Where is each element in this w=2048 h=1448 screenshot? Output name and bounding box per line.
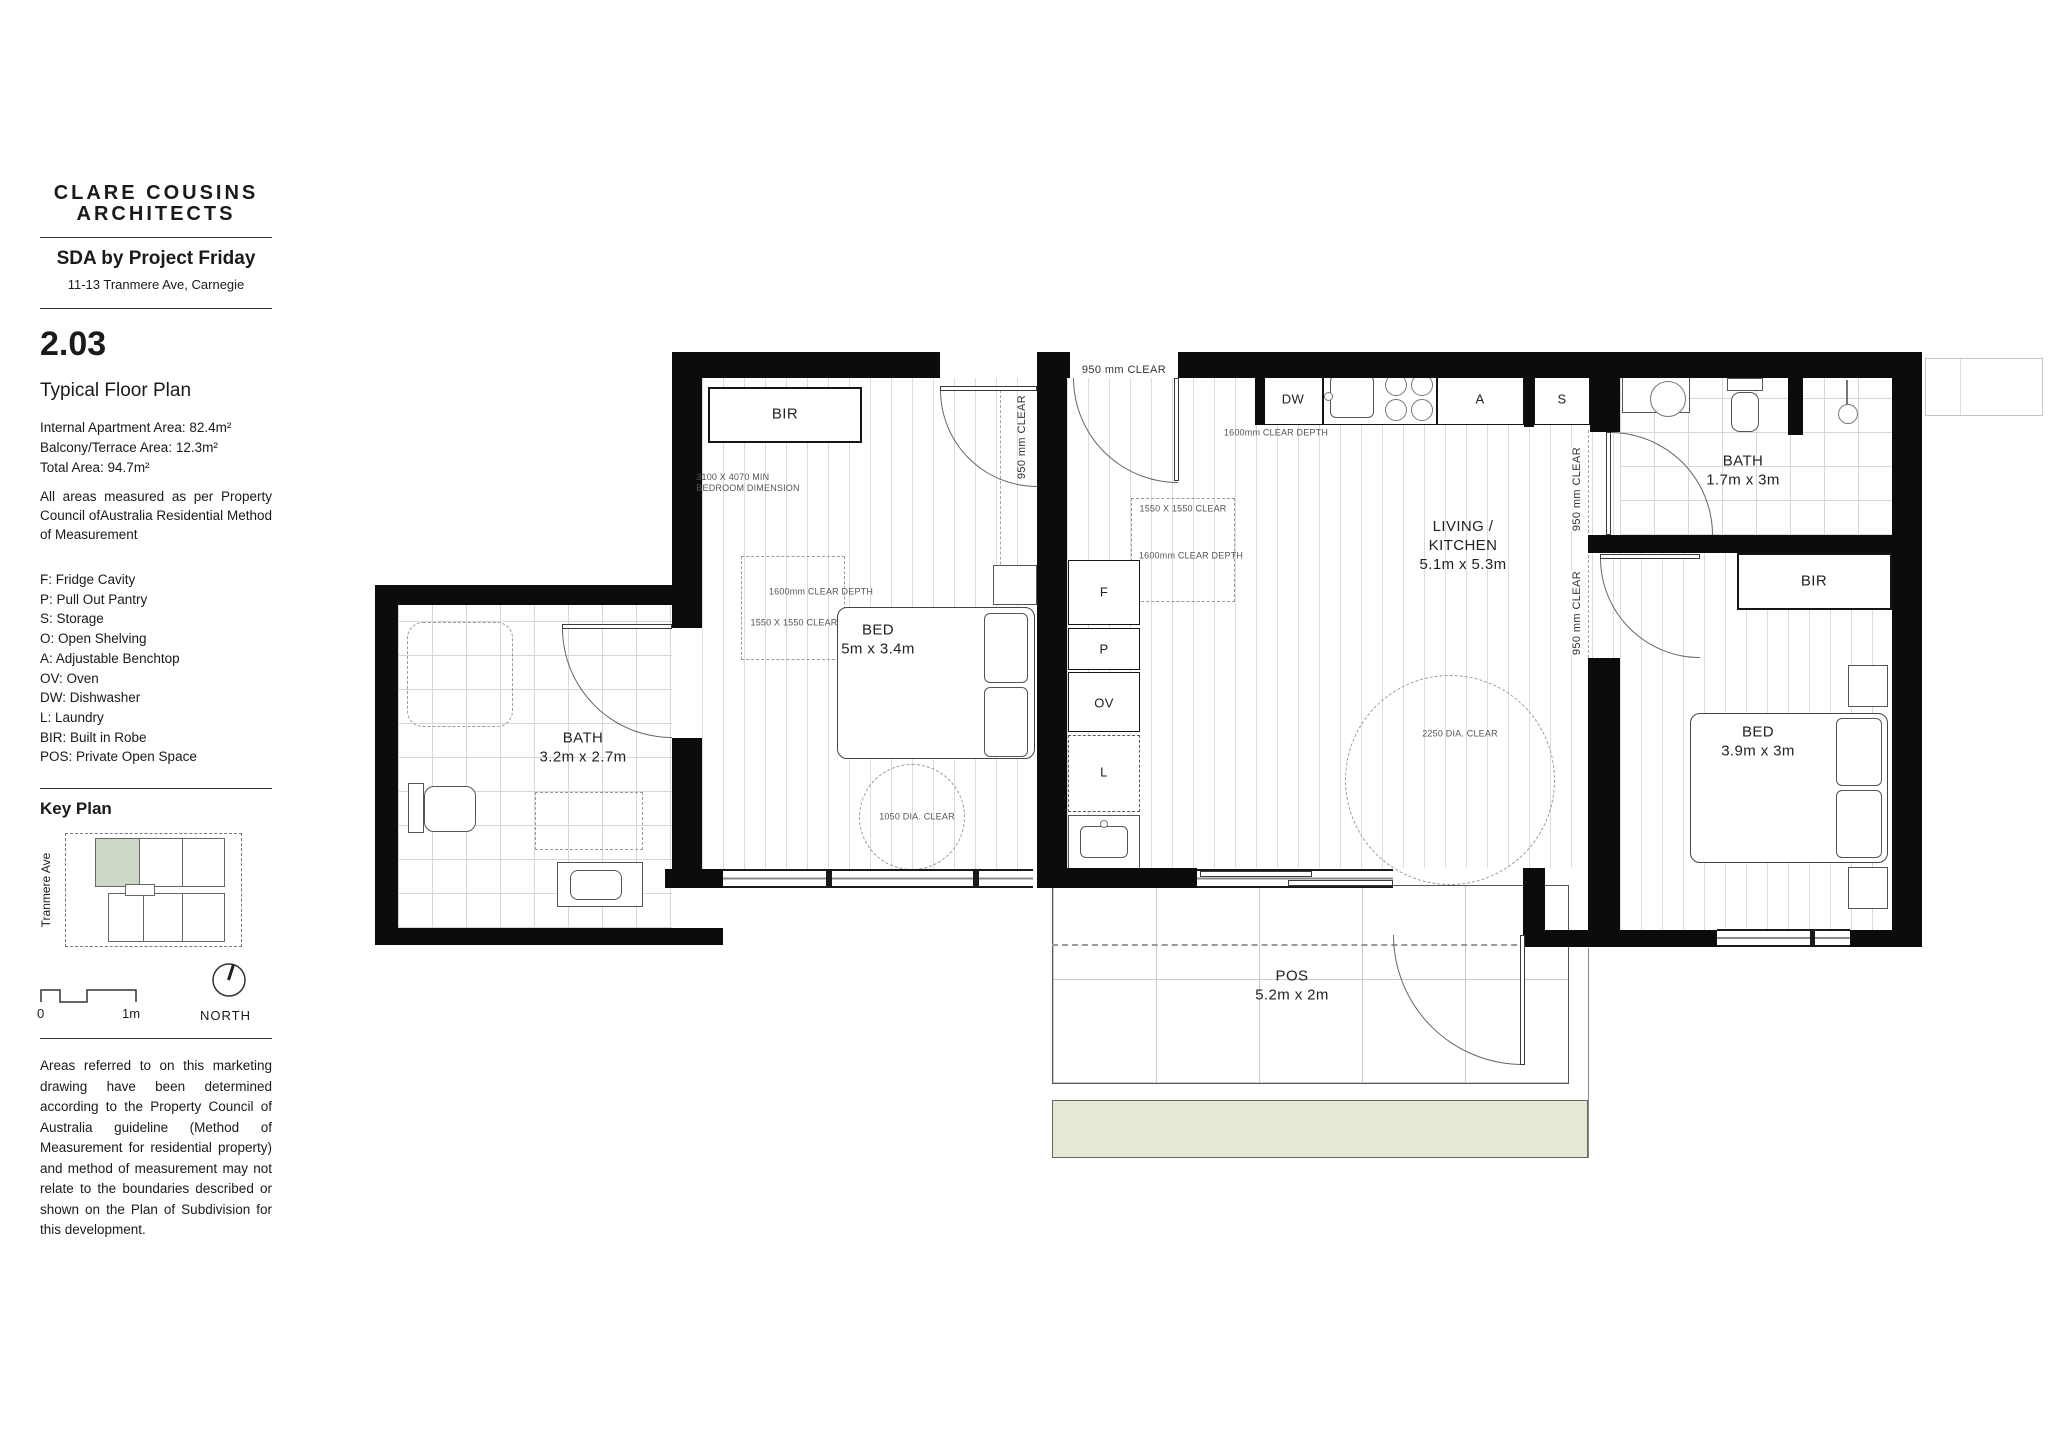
legend-item: A: Adjustable Benchtop — [40, 649, 272, 669]
divider — [40, 1038, 272, 1039]
bed1-nightstand — [993, 565, 1037, 605]
adjacent-structure-outline — [1925, 358, 2043, 416]
key-plan-street-label: Tranmere Ave — [39, 853, 53, 928]
wall — [1850, 930, 1892, 947]
clear950-label-v2: 950 mm CLEAR — [1571, 447, 1583, 531]
boundary-line — [1588, 948, 1589, 1158]
architect-logo: CLARE COUSINS ARCHITECTS — [40, 183, 272, 225]
divider — [40, 788, 272, 789]
bedroom-min-line2: BEDROOM DIMENSION — [696, 483, 799, 494]
wall — [1037, 378, 1067, 888]
wall — [665, 869, 723, 888]
living-name2: KITCHEN — [1420, 537, 1507, 556]
laundry-sink — [1080, 826, 1128, 858]
dw-label: DW — [1282, 392, 1304, 407]
bed1-name: BED — [841, 621, 915, 640]
area-summary: Internal Apartment Area: 82.4m² Balcony/… — [40, 418, 272, 478]
pos-label: POS 5.2m x 2m — [1255, 967, 1329, 1005]
kitchen-tap — [1324, 392, 1333, 401]
wall — [375, 585, 675, 605]
bed2-nightstand — [1848, 867, 1888, 909]
key-plan-wall — [143, 893, 144, 942]
project-address: 11-13 Tranmere Ave, Carnegie — [40, 277, 272, 292]
bath1-basin — [570, 870, 622, 900]
key-plan-highlighted-unit — [95, 838, 140, 887]
bir1-label: BIR — [772, 406, 798, 425]
cooktop-burner — [1385, 399, 1407, 421]
l-label: L — [1100, 765, 1108, 780]
bedroom2-window — [1717, 929, 1850, 947]
scale-1m-label: 1m — [122, 1006, 140, 1021]
legend-item: L: Laundry — [40, 708, 272, 728]
bath1-dim: 3.2m x 2.7m — [540, 748, 627, 767]
legend-item: POS: Private Open Space — [40, 747, 272, 767]
sheet-number: 2.03 — [40, 325, 106, 364]
divider — [40, 237, 272, 238]
bedroom-min-dimension-note: 3100 X 4070 MIN BEDROOM DIMENSION — [696, 472, 799, 494]
north-arrow-icon — [206, 958, 252, 1004]
bath2-dim: 1.7m x 3m — [1706, 471, 1780, 490]
scale-zero-label: 0 — [37, 1006, 44, 1021]
laundry-tap — [1100, 820, 1108, 828]
bedroom1-window — [723, 869, 1033, 888]
bed1-label: BED 5m x 3.4m — [841, 621, 915, 659]
bath2-label: BATH 1.7m x 3m — [1706, 452, 1780, 490]
clear-depth-note-2: 1600mm CLEAR DEPTH — [1139, 551, 1243, 562]
sliding-door-panel — [1288, 880, 1393, 886]
legend-item: O: Open Shelving — [40, 629, 272, 649]
wall — [1178, 352, 1922, 378]
wall — [1255, 365, 1265, 425]
wall — [1892, 352, 1922, 947]
logo-line2: ARCHITECTS — [40, 204, 272, 225]
a-label: A — [1475, 392, 1484, 407]
legend-item: P: Pull Out Pantry — [40, 590, 272, 610]
key-plan-wall — [182, 838, 183, 887]
bath2-toilet-cistern — [1727, 378, 1763, 391]
disclaimer: Areas referred to on this marketing draw… — [40, 1056, 272, 1241]
window-mullion — [1810, 929, 1815, 947]
logo-line1: CLARE COUSINS — [40, 183, 272, 204]
cooktop-burner — [1411, 399, 1433, 421]
wall — [375, 585, 398, 945]
clear950-label-h: 950 mm CLEAR — [1079, 364, 1169, 376]
bath1-toilet — [424, 786, 476, 832]
divider — [40, 308, 272, 309]
measurement-note: All areas measured as per Property Counc… — [40, 487, 272, 544]
window-mullion — [973, 869, 979, 888]
bir2-label: BIR — [1801, 573, 1827, 592]
living-name1: LIVING / — [1420, 518, 1507, 537]
bed1-dim: 5m x 3.4m — [841, 640, 915, 659]
living-label: LIVING / KITCHEN 5.1m x 5.3m — [1420, 518, 1507, 574]
ov-label: OV — [1094, 696, 1114, 711]
key-plan-building-bottom — [108, 893, 225, 942]
adjacent-structure-line — [1960, 359, 1961, 415]
dia-2250-note: 2250 DIA. CLEAR — [1422, 729, 1498, 740]
bedroom2-door-leaf — [1600, 554, 1700, 559]
clear-1550-note-2: 1550 X 1550 CLEAR — [751, 618, 838, 629]
bed2-name: BED — [1721, 723, 1795, 742]
bath1-door-leaf — [562, 624, 672, 629]
area-total: Total Area: 94.7m² — [40, 458, 272, 478]
bed2-label: BED 3.9m x 3m — [1721, 723, 1795, 761]
bed1-pillow — [984, 613, 1028, 683]
bedroom1-door-leaf — [940, 386, 1037, 391]
wall — [1588, 535, 1892, 553]
f-label: F — [1100, 585, 1108, 600]
bed2-dim: 3.9m x 3m — [1721, 742, 1795, 761]
floor-plan-sheet: CLARE COUSINS ARCHITECTS SDA by Project … — [0, 0, 2048, 1448]
legend-item: DW: Dishwasher — [40, 688, 272, 708]
bed1-pillow — [984, 687, 1028, 757]
area-balcony: Balcony/Terrace Area: 12.3m² — [40, 438, 272, 458]
legend-list: F: Fridge Cavity P: Pull Out Pantry S: S… — [40, 570, 272, 767]
living-dim: 5.1m x 5.3m — [1420, 555, 1507, 574]
key-plan-jog — [125, 884, 155, 896]
turning-circle-living — [1345, 675, 1555, 885]
wall — [1524, 365, 1534, 427]
wall — [1545, 930, 1717, 947]
scale-bar — [40, 986, 138, 1006]
p-label: P — [1099, 642, 1108, 657]
wall — [375, 928, 723, 945]
bath2-name: BATH — [1706, 452, 1780, 471]
bath1-label: BATH 3.2m x 2.7m — [540, 729, 627, 767]
sheet-title: Typical Floor Plan — [40, 380, 191, 402]
clear950-label-v1: 950 mm CLEAR — [1016, 395, 1028, 479]
bath2-basin — [1650, 381, 1686, 417]
bath2-toilet — [1731, 392, 1759, 432]
shower-head — [1838, 404, 1858, 424]
window-mullion — [826, 869, 832, 888]
bath1-name: BATH — [540, 729, 627, 748]
s-label: S — [1557, 392, 1566, 407]
clear-depth-note-3: 1600mm CLEAR DEPTH — [769, 587, 873, 598]
clear-1550-note-1: 1550 X 1550 CLEAR — [1140, 504, 1227, 515]
clear-depth-note-1: 1600mm CLEAR DEPTH — [1224, 428, 1328, 439]
north-label: NORTH — [200, 1008, 251, 1023]
project-title: SDA by Project Friday — [40, 248, 272, 270]
wall — [1037, 868, 1197, 888]
clear950-label-v3: 950 mm CLEAR — [1571, 571, 1583, 655]
bath1-clearance-dashed — [535, 792, 643, 850]
key-plan-title: Key Plan — [40, 799, 112, 819]
key-plan-wall — [182, 893, 183, 942]
wall — [1037, 352, 1070, 378]
bed2-pillow — [1836, 790, 1882, 858]
shower-arm — [1846, 380, 1848, 406]
wall — [672, 352, 940, 378]
pos-door-leaf — [1520, 935, 1525, 1065]
wall — [1523, 868, 1545, 947]
wall — [672, 738, 702, 870]
kitchen-sink — [1330, 375, 1374, 418]
dia-1050-note: 1050 DIA. CLEAR — [879, 812, 955, 823]
entry-door-leaf — [1174, 378, 1179, 481]
pos-name: POS — [1255, 967, 1329, 986]
garden-strip — [1052, 1100, 1588, 1158]
bed2-nightstand — [1848, 665, 1888, 707]
bedroom-min-line1: 3100 X 4070 MIN — [696, 472, 799, 483]
shower-zone-dashed — [407, 622, 513, 727]
wall — [1788, 378, 1803, 435]
wall — [1590, 362, 1620, 432]
legend-item: S: Storage — [40, 609, 272, 629]
bath1-toilet-cistern — [408, 783, 424, 833]
legend-item: F: Fridge Cavity — [40, 570, 272, 590]
legend-item: BIR: Built in Robe — [40, 728, 272, 748]
bed2-pillow — [1836, 718, 1882, 786]
legend-item: OV: Oven — [40, 669, 272, 689]
pos-dim: 5.2m x 2m — [1255, 986, 1329, 1005]
bath2-door-leaf — [1606, 432, 1611, 535]
area-internal: Internal Apartment Area: 82.4m² — [40, 418, 272, 438]
sliding-door-panel — [1200, 871, 1312, 877]
wall — [1588, 658, 1620, 947]
clearance-square-bed1 — [741, 556, 845, 660]
